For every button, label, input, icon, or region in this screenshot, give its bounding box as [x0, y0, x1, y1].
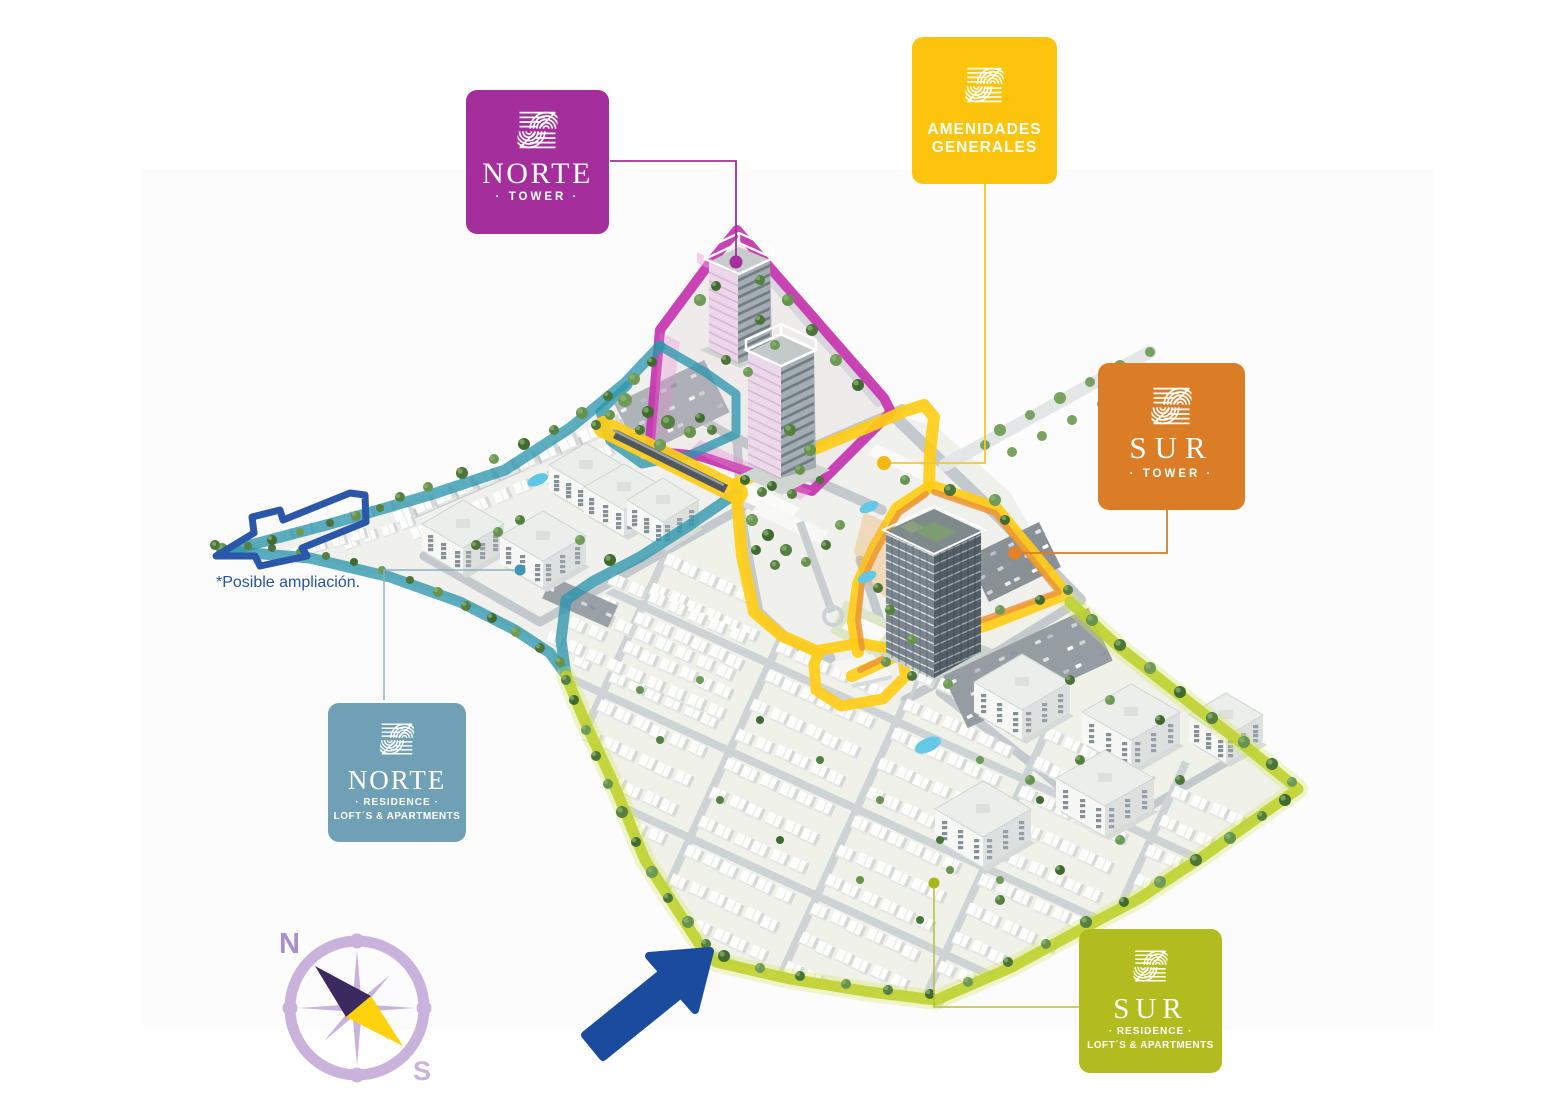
svg-text:N: N — [279, 928, 300, 960]
svg-text:*Posible ampliación.: *Posible ampliación. — [216, 574, 360, 591]
svg-text:NORTE: NORTE — [348, 765, 446, 795]
svg-text:LOFT´S & APARTMENTS: LOFT´S & APARTMENTS — [334, 811, 461, 822]
svg-text:GENERALES: GENERALES — [932, 139, 1037, 156]
svg-text:· TOWER ·: · TOWER · — [1130, 468, 1214, 480]
svg-text:· RESIDENCE ·: · RESIDENCE · — [1109, 1026, 1193, 1037]
svg-text:AMENIDADES: AMENIDADES — [927, 121, 1041, 138]
svg-text:S: S — [413, 1056, 431, 1086]
svg-text:LOFT´S & APARTMENTS: LOFT´S & APARTMENTS — [1087, 1040, 1214, 1051]
svg-text:· TOWER ·: · TOWER · — [496, 191, 580, 203]
svg-text:SUR: SUR — [1113, 993, 1187, 1025]
svg-text:NORTE: NORTE — [482, 157, 593, 190]
svg-text:· RESIDENCE ·: · RESIDENCE · — [355, 797, 439, 808]
svg-text:SUR: SUR — [1129, 430, 1213, 465]
